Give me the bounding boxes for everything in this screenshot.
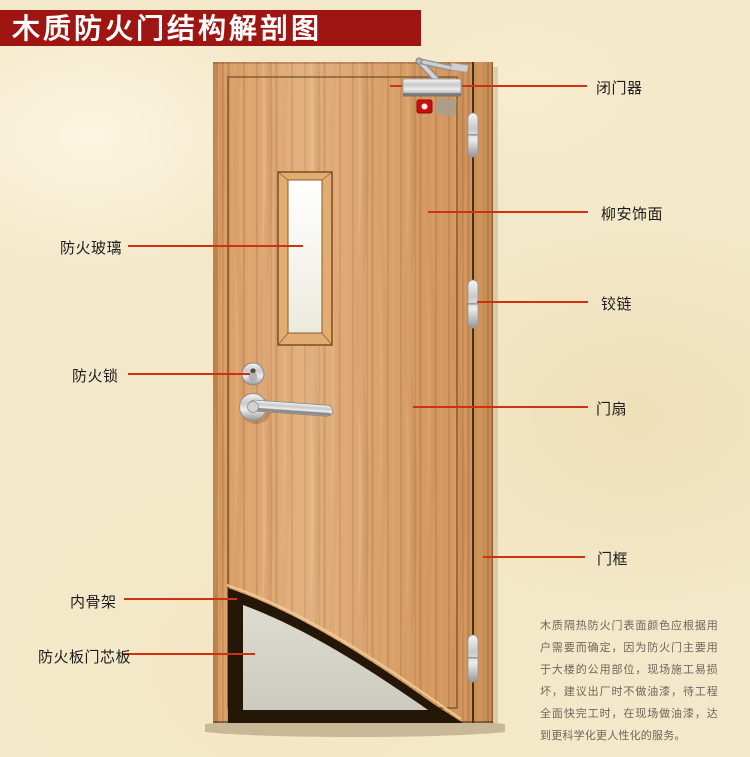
pointer-core-board: [123, 653, 255, 655]
fire-door-illustration: [205, 55, 505, 745]
title-banner: 木质防火门结构解剖图: [0, 10, 421, 46]
pointer-door-frame: [483, 556, 585, 558]
pointer-door-closer-b: [462, 85, 587, 87]
label-inner-skeleton: 内骨架: [70, 591, 117, 612]
door-gap-line: [472, 62, 474, 723]
label-door-frame: 门框: [597, 548, 628, 569]
page-title: 木质防火门结构解剖图: [12, 12, 322, 45]
diagram-page: 木质防火门结构解剖图: [0, 0, 750, 757]
pointer-door-leaf: [413, 406, 588, 408]
pointer-door-closer-a: [390, 85, 402, 87]
label-lauan-veneer: 柳安饰面: [601, 203, 663, 224]
pointer-inner-skeleton: [124, 598, 237, 600]
door-frame-strip: [474, 62, 493, 723]
pointer-fire-lock: [128, 373, 250, 375]
label-door-leaf: 门扇: [596, 398, 627, 419]
pointer-lauan-veneer: [428, 211, 588, 213]
pointer-hinge: [477, 301, 588, 303]
label-core-board: 防火板门芯板: [38, 646, 131, 667]
frame-side-shadow: [493, 67, 498, 723]
fire-glass-window: [278, 172, 332, 345]
pointer-fireproof-glass: [128, 245, 303, 247]
closer-label-plate: [435, 98, 457, 116]
hinge-top: [468, 113, 478, 157]
label-door-closer: 闭门器: [596, 77, 643, 98]
hinge-bottom: [468, 635, 478, 682]
label-fireproof-glass: 防火玻璃: [60, 237, 122, 258]
hinge-middle: [468, 280, 478, 328]
alarm-indicator-icon: [417, 100, 432, 113]
product-description: 木质隔热防火门表面颜色应根据用户需要而确定，因为防火门主要用于大楼的公用部位，现…: [540, 615, 718, 747]
label-fire-lock: 防火锁: [72, 365, 119, 386]
label-hinge: 铰链: [601, 293, 632, 314]
